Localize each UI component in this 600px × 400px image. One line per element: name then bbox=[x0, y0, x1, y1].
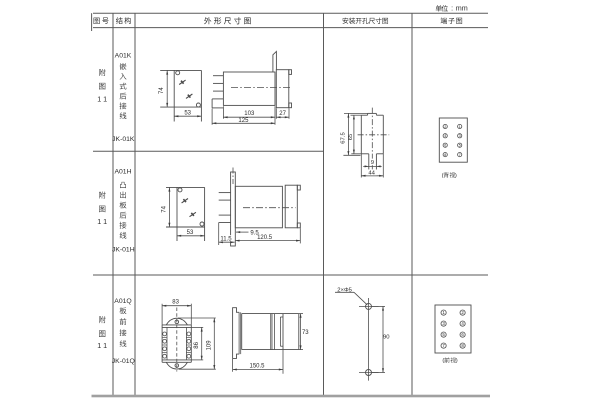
svg-text:1 1: 1 1 bbox=[97, 341, 107, 350]
svg-text:73: 73 bbox=[302, 330, 309, 336]
svg-text:9: 9 bbox=[371, 160, 374, 166]
svg-text:120.5: 120.5 bbox=[257, 235, 273, 241]
svg-text:44: 44 bbox=[368, 170, 375, 176]
svg-text:109: 109 bbox=[207, 340, 213, 351]
svg-text:74: 74 bbox=[159, 87, 165, 94]
svg-text:JK-01Q: JK-01Q bbox=[112, 358, 135, 365]
svg-text::: : bbox=[451, 6, 453, 13]
svg-text:6: 6 bbox=[444, 143, 446, 147]
svg-text:150.5: 150.5 bbox=[249, 363, 265, 369]
svg-text:11.5: 11.5 bbox=[220, 237, 232, 243]
svg-text:(: ( bbox=[442, 173, 444, 179]
svg-text:JK-01K: JK-01K bbox=[112, 136, 135, 143]
svg-text:mm: mm bbox=[456, 4, 468, 13]
svg-text:53: 53 bbox=[187, 230, 194, 236]
svg-text:A01H: A01H bbox=[114, 169, 131, 176]
svg-text:8: 8 bbox=[444, 153, 446, 157]
svg-text:1 1: 1 1 bbox=[97, 95, 107, 104]
svg-text:7: 7 bbox=[459, 153, 461, 157]
svg-text:JK-01H: JK-01H bbox=[112, 247, 135, 254]
svg-text:): ) bbox=[456, 358, 458, 364]
svg-text:83: 83 bbox=[172, 300, 179, 306]
svg-text:53: 53 bbox=[184, 110, 191, 116]
svg-text:125: 125 bbox=[238, 118, 249, 124]
svg-text:1: 1 bbox=[459, 125, 461, 129]
svg-text:1 1: 1 1 bbox=[97, 217, 107, 226]
svg-text:3: 3 bbox=[459, 134, 461, 138]
svg-text:5: 5 bbox=[459, 143, 461, 147]
svg-text:(: ( bbox=[442, 358, 444, 364]
svg-text:2: 2 bbox=[444, 125, 446, 129]
svg-text:103: 103 bbox=[244, 111, 255, 117]
svg-text:67.5: 67.5 bbox=[340, 132, 346, 144]
svg-text:27: 27 bbox=[279, 111, 286, 117]
svg-text:65: 65 bbox=[348, 133, 354, 140]
svg-text:74: 74 bbox=[161, 205, 167, 212]
svg-text:86: 86 bbox=[194, 341, 200, 348]
svg-text:90: 90 bbox=[383, 335, 390, 341]
svg-text:A01Q: A01Q bbox=[114, 298, 131, 305]
svg-text:A01K: A01K bbox=[115, 52, 132, 59]
svg-text:4: 4 bbox=[444, 134, 446, 138]
svg-text:): ) bbox=[455, 173, 457, 179]
